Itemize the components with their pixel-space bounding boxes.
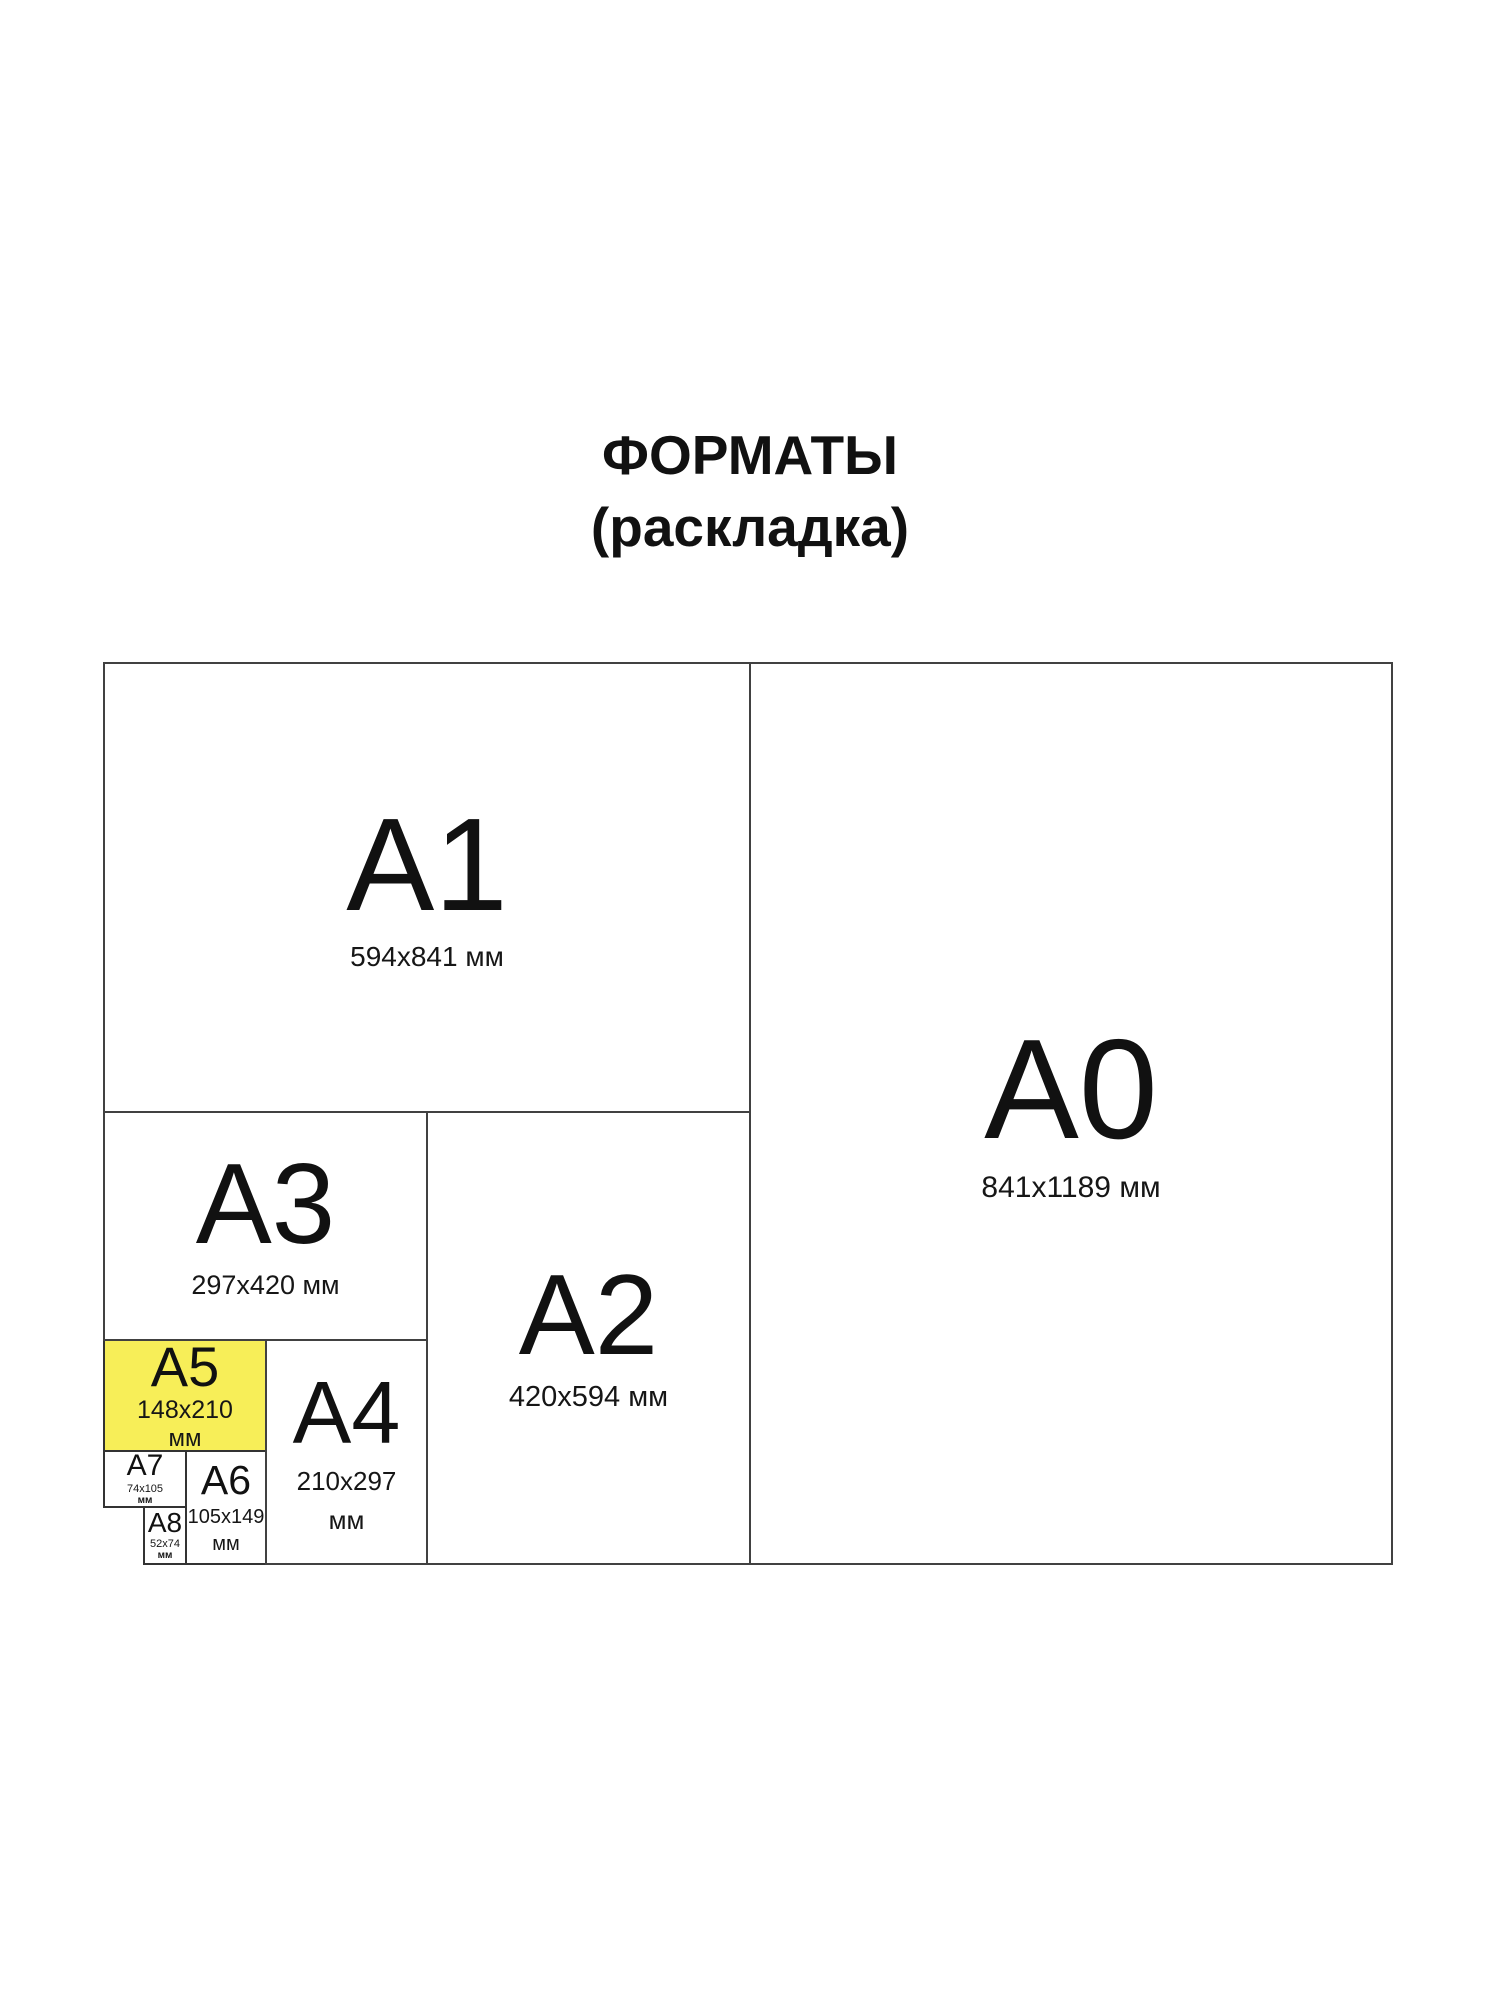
format-box-a6: A6 105x149 мм — [185, 1452, 265, 1565]
format-unit-a7: мм — [138, 1496, 153, 1506]
format-label-a7: A7 — [127, 1452, 164, 1481]
format-size-a3: 297x420 мм — [191, 1271, 339, 1301]
format-unit-a5: мм — [169, 1427, 202, 1451]
format-box-a7: A7 74x105 мм — [103, 1452, 185, 1508]
format-unit-a4: мм — [329, 1507, 365, 1533]
format-unit-a6: мм — [212, 1534, 240, 1554]
format-size-a7: 74x105 — [127, 1483, 163, 1495]
format-box-a2: A2 420x594 мм — [426, 1113, 749, 1565]
diagram-title-line2: (раскладка) — [0, 492, 1500, 564]
paper-formats-diagram: ФОРМАТЫ (раскладка) A1 594x841 мм A0 841… — [0, 0, 1500, 2000]
format-label-a4: A4 — [293, 1371, 401, 1455]
format-box-a0: A0 841x1189 мм — [749, 662, 1393, 1565]
format-box-a5: A5 148x210 мм — [103, 1341, 265, 1452]
diagram-title: ФОРМАТЫ (раскладка) — [0, 420, 1500, 563]
format-size-a4: 210x297 — [297, 1467, 397, 1496]
format-size-a2: 420x594 мм — [509, 1382, 668, 1414]
format-label-a6: A6 — [201, 1461, 251, 1500]
format-size-a8: 52x74 — [150, 1538, 180, 1550]
format-label-a0: A0 — [984, 1023, 1158, 1158]
format-label-a5: A5 — [151, 1340, 220, 1393]
format-size-a1: 594x841 мм — [350, 942, 504, 973]
format-unit-a8: мм — [158, 1551, 173, 1561]
format-size-a0: 841x1189 мм — [981, 1171, 1160, 1204]
format-box-a4: A4 210x297 мм — [265, 1341, 426, 1565]
diagram-title-line1: ФОРМАТЫ — [0, 420, 1500, 492]
format-label-a8: A8 — [148, 1510, 182, 1537]
format-box-a1: A1 594x841 мм — [103, 662, 749, 1113]
format-label-a2: A2 — [519, 1262, 658, 1370]
format-size-a5: 148x210 — [137, 1397, 233, 1423]
format-size-a6: 105x149 — [188, 1506, 265, 1528]
format-label-a1: A1 — [346, 802, 507, 927]
format-label-a3: A3 — [196, 1151, 335, 1259]
format-box-a8: A8 52x74 мм — [143, 1508, 185, 1565]
format-box-a3: A3 297x420 мм — [103, 1113, 426, 1341]
